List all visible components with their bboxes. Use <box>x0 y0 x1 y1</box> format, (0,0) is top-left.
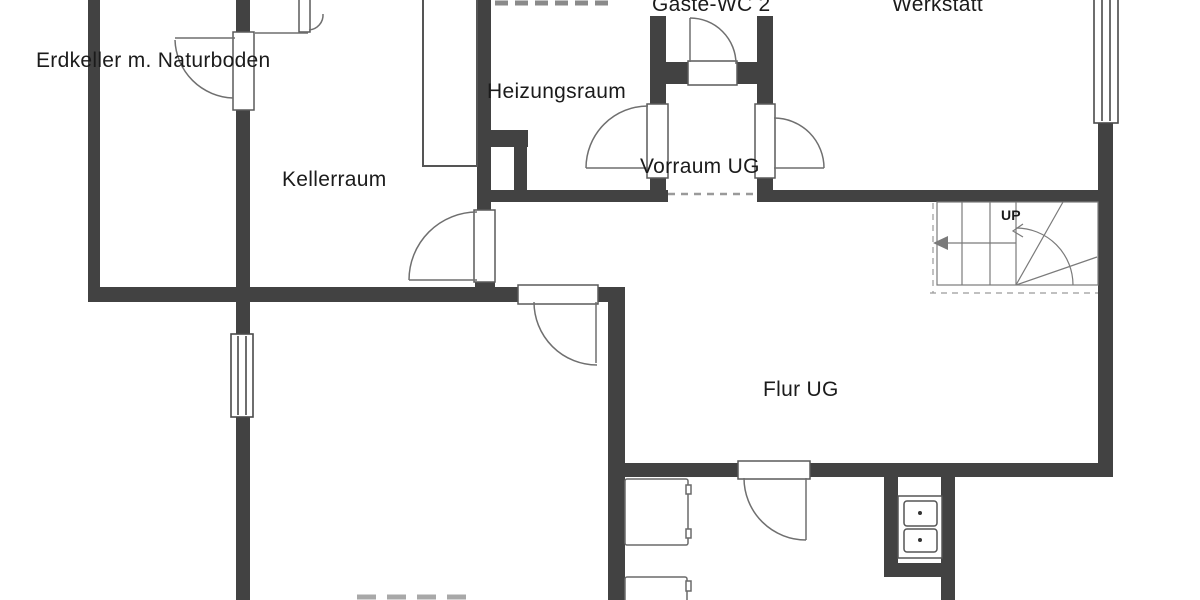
cabinet-upper <box>625 479 688 545</box>
door-swing-hall-room <box>534 302 597 365</box>
wall-left-lower <box>236 415 250 600</box>
built-in-cabinets <box>625 479 691 600</box>
window-werkstatt <box>1094 0 1118 123</box>
wall-flur-left <box>608 302 625 600</box>
room-label-erdkeller: Erdkeller m. Naturboden <box>36 50 271 71</box>
room-label-vorraum: Vorraum UG <box>640 156 760 177</box>
wall-hall-top-left <box>477 190 668 202</box>
appliance-upper-knob <box>918 511 922 515</box>
wall-flur-bottom-right <box>810 463 1113 477</box>
wall-heizung-left-pier <box>475 281 495 302</box>
wall-middle-horizontal-left <box>88 287 520 302</box>
stair-walkline-arrowhead <box>933 236 948 250</box>
door-gwc-opening <box>688 61 737 85</box>
wall-chimney-right <box>514 147 527 192</box>
room-label-werkstatt: Werkstatt <box>892 0 983 15</box>
door-swing-werkstatt <box>774 118 824 168</box>
wall-heizung-left <box>477 0 491 212</box>
cabinet-upper-hinge-bottom <box>686 529 691 538</box>
wall-chimney-top <box>490 130 528 147</box>
wall-right-exterior <box>1098 121 1113 477</box>
wall-flur-bottom-left <box>625 463 738 477</box>
shaft-outline <box>423 0 477 166</box>
wall-middle-horizontal-right <box>597 287 625 302</box>
wall-hall-top-right <box>757 190 1113 202</box>
door-swing-kellerraum-hall <box>409 212 477 280</box>
door-swing-flur-bottom <box>744 478 806 540</box>
door-swing-heizung <box>586 106 648 168</box>
wall-niche-left <box>884 477 898 567</box>
stair-winder-2 <box>1016 257 1097 285</box>
room-label-kellerraum: Kellerraum <box>282 169 387 190</box>
stairs-up-label: UP <box>1001 208 1021 222</box>
room-label-flur: Flur UG <box>763 379 839 400</box>
door-swing-top-edge <box>255 14 323 33</box>
cabinet-lower <box>625 577 687 600</box>
floorplan-canvas: Erdkeller m. Naturboden Kellerraum Heizu… <box>0 0 1200 600</box>
window-left <box>231 334 253 417</box>
wall-gwc-bottom-left <box>650 62 690 84</box>
cabinet-lower-hinge <box>686 581 691 591</box>
wall-erdkeller-right-top <box>236 0 250 34</box>
door-hall-room-opening <box>518 285 598 304</box>
stair-winder-1 <box>1016 202 1063 285</box>
door-swing-gwc <box>690 18 736 64</box>
wall-vorraum-left-upper <box>650 16 666 104</box>
wall-niche-right <box>941 477 955 600</box>
door-kellerraum-hall-opening <box>474 210 495 282</box>
cabinet-upper-hinge-top <box>686 485 691 494</box>
wall-erdkeller-left <box>88 0 100 302</box>
door-flur-bottom-opening <box>738 461 810 479</box>
door-openings <box>233 0 810 479</box>
appliance-lower-knob <box>918 538 922 542</box>
wall-vorraum-right-upper <box>757 16 773 104</box>
room-label-heizungsraum: Heizungsraum <box>487 81 626 102</box>
door-leaf-top-edge <box>299 0 310 32</box>
stair-winder-arc <box>1016 228 1073 285</box>
appliance-unit <box>898 496 942 558</box>
stair-arc-arrowhead <box>1013 224 1023 237</box>
room-label-gaeste-wc: Gäste-WC 2 <box>652 0 771 15</box>
